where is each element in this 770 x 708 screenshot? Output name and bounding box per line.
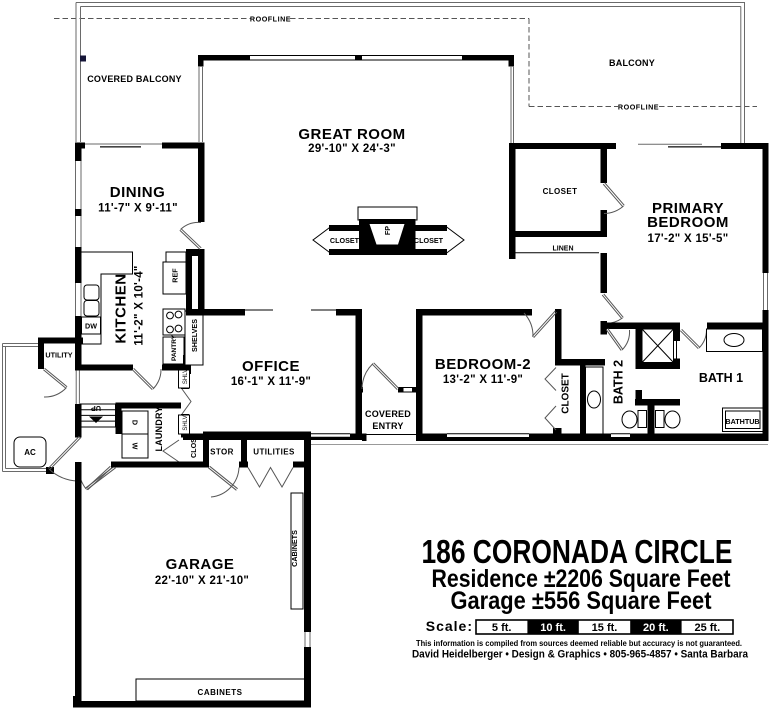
svg-text:SHLV: SHLV — [183, 415, 189, 430]
svg-text:ENTRY: ENTRY — [372, 421, 403, 431]
svg-text:STOR: STOR — [210, 448, 234, 457]
svg-text:OFFICE: OFFICE — [242, 358, 300, 375]
svg-text:ROOFLINE: ROOFLINE — [618, 103, 659, 112]
svg-text:CLOSET: CLOSET — [414, 236, 444, 245]
svg-text:Scale:: Scale: — [426, 618, 473, 634]
svg-text:22'-10" X 21'-10": 22'-10" X 21'-10" — [155, 575, 249, 587]
svg-text:25 ft.: 25 ft. — [694, 622, 720, 634]
svg-text:REF: REF — [171, 268, 180, 283]
svg-text:LINEN: LINEN — [553, 246, 574, 253]
svg-text:11'-2" X 10'-4": 11'-2" X 10'-4" — [134, 265, 146, 345]
svg-text:COVERED: COVERED — [365, 409, 411, 419]
svg-text:UTILITY: UTILITY — [45, 351, 72, 360]
svg-text:Garage ±556 Square Feet: Garage ±556 Square Feet — [451, 587, 713, 615]
svg-text:CLOS: CLOS — [189, 438, 198, 458]
svg-text:29'-10" X 24'-3": 29'-10" X 24'-3" — [308, 143, 396, 155]
svg-text:BATHTUB: BATHTUB — [725, 417, 759, 426]
svg-text:15 ft.: 15 ft. — [592, 622, 618, 634]
svg-text:PANTRY: PANTRY — [171, 334, 178, 361]
svg-text:This information is compiled f: This information is compiled from source… — [416, 639, 742, 648]
svg-text:SHLV: SHLV — [183, 369, 189, 384]
svg-text:UP: UP — [91, 404, 101, 413]
svg-text:CLOSET: CLOSET — [543, 187, 578, 196]
svg-text:5 ft.: 5 ft. — [492, 622, 512, 634]
svg-text:DW: DW — [85, 322, 97, 331]
svg-text:CABINETS: CABINETS — [198, 688, 243, 697]
svg-text:BEDROOM-2: BEDROOM-2 — [435, 356, 531, 373]
svg-text:17'-2" X 15'-5": 17'-2" X 15'-5" — [648, 233, 729, 245]
svg-text:FP: FP — [383, 226, 392, 235]
svg-text:David Heidelberger • Design &: David Heidelberger • Design & Graphics •… — [412, 649, 749, 661]
svg-text:BEDROOM: BEDROOM — [647, 214, 729, 231]
svg-text:KITCHEN: KITCHEN — [113, 273, 130, 343]
svg-text:AC: AC — [24, 448, 36, 457]
svg-text:10 ft.: 10 ft. — [540, 622, 566, 634]
svg-text:W: W — [131, 443, 140, 450]
svg-text:DINING: DINING — [110, 184, 166, 201]
svg-text:LAUNDRY: LAUNDRY — [154, 406, 164, 451]
svg-text:16'-1" X 11'-9": 16'-1" X 11'-9" — [231, 376, 311, 388]
svg-text:CLOSET: CLOSET — [561, 373, 572, 414]
svg-text:CABINETS: CABINETS — [290, 530, 299, 567]
svg-text:BATH 1: BATH 1 — [699, 371, 743, 385]
svg-text:D: D — [131, 420, 140, 425]
svg-text:13'-2" X 11'-9": 13'-2" X 11'-9" — [443, 374, 523, 386]
svg-text:CLOSET: CLOSET — [330, 236, 360, 245]
svg-text:COVERED BALCONY: COVERED BALCONY — [87, 74, 182, 84]
svg-text:BALCONY: BALCONY — [609, 58, 655, 68]
svg-text:UTILITIES: UTILITIES — [253, 448, 295, 457]
svg-text:SHELVES: SHELVES — [190, 319, 199, 352]
svg-text:BATH 2: BATH 2 — [612, 360, 626, 404]
svg-text:11'-7" X 9'-11": 11'-7" X 9'-11" — [98, 203, 178, 215]
svg-text:GREAT ROOM: GREAT ROOM — [298, 126, 405, 143]
svg-text:20 ft.: 20 ft. — [643, 622, 669, 634]
svg-text:GARAGE: GARAGE — [166, 556, 235, 573]
svg-text:ROOFLINE: ROOFLINE — [250, 15, 291, 24]
